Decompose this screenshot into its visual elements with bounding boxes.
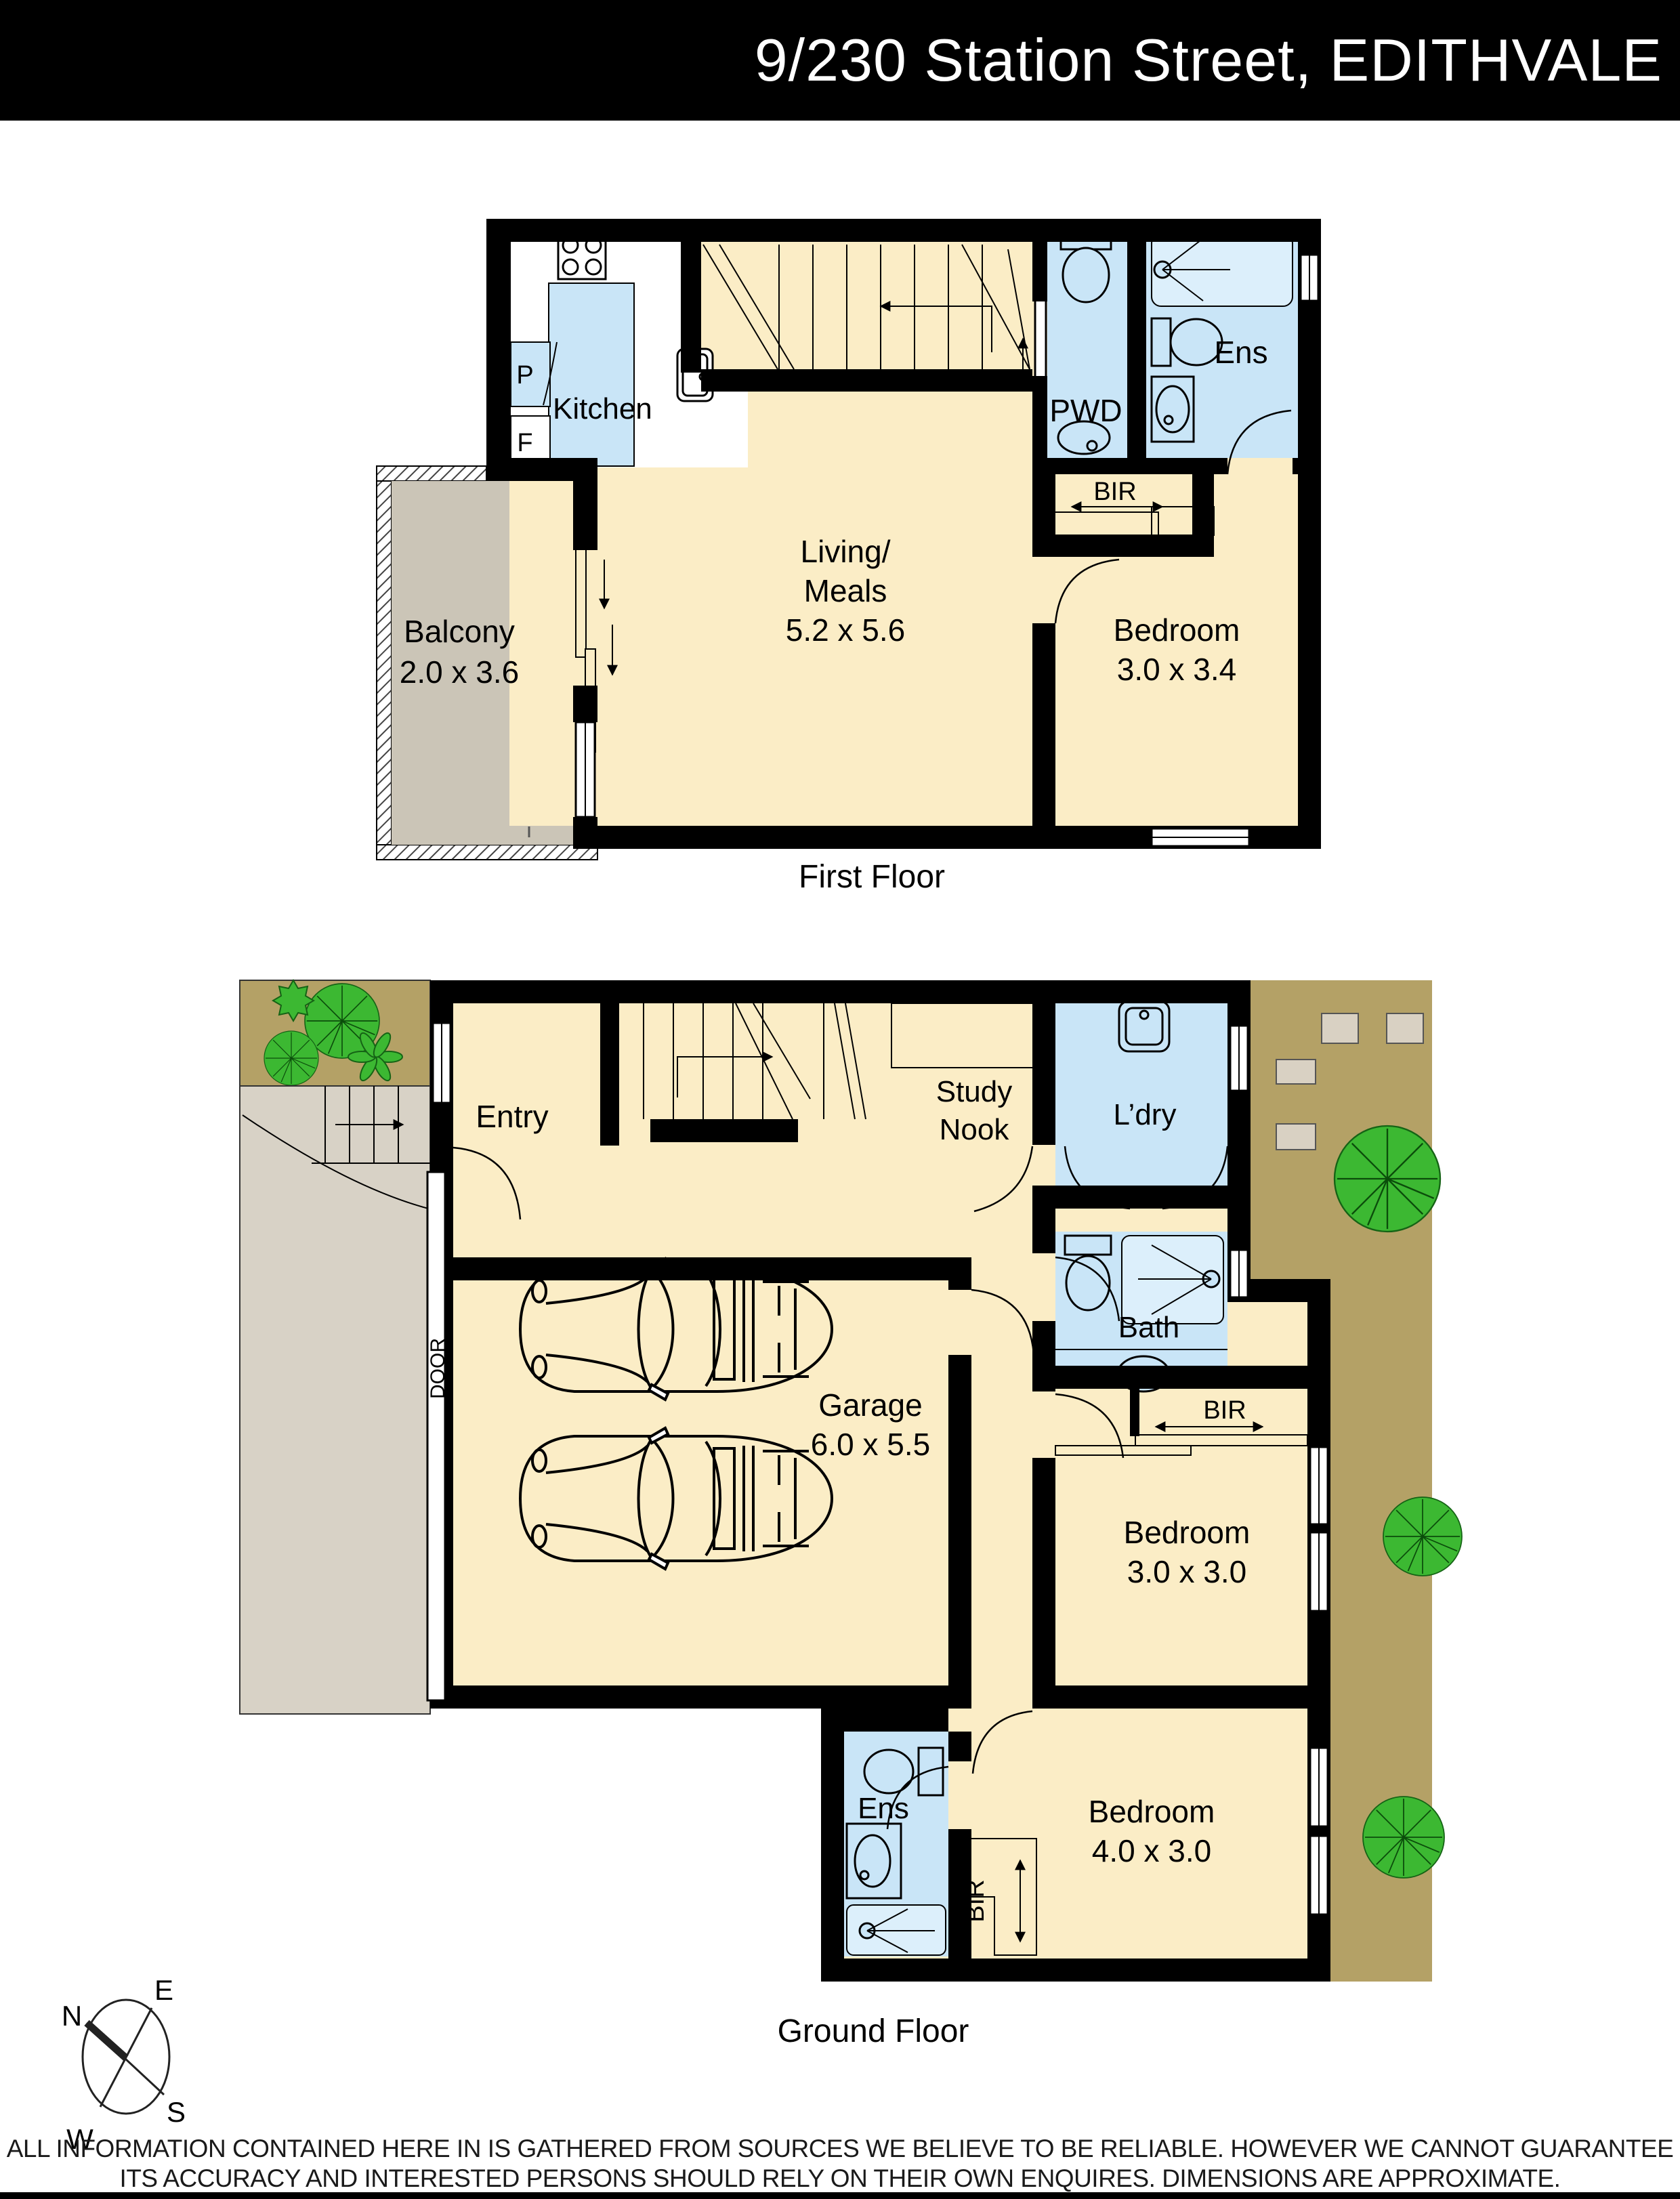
bath-label: Bath [1118,1311,1180,1344]
balcony-label: Balcony [404,614,515,649]
kitchen-label: Kitchen [553,392,652,425]
laundry-label: L’dry [1114,1098,1177,1131]
pwd-label: PWD [1049,393,1122,428]
first-floor-caption: First Floor [799,859,945,895]
bir1-label: BIR [1203,1396,1246,1425]
toilet-icon [1152,318,1171,366]
svg-text:Nook: Nook [940,1113,1010,1146]
toilet-icon [919,1748,943,1795]
bedroom4-label: Bedroom [1089,1794,1215,1829]
bedroom3-dims: 3.0 x 3.0 [1127,1554,1246,1589]
ground-floor-plan: Entry Study Nook L’dry Bath Garage 6.0 x… [240,980,1462,2049]
ground-floor-caption: Ground Floor [778,2013,969,2049]
living-label: Living/ [801,534,891,569]
balcony-dims: 2.0 x 3.6 [400,654,519,690]
kitchen-bench [549,283,634,466]
compass-s: S [167,2096,186,2128]
entry-label: Entry [476,1099,548,1134]
disclaimer: ALL INFORMATION CONTAINED HERE IN IS GAT… [0,2134,1680,2194]
compass-n: N [62,2000,82,2032]
ens-ground-label: Ens [858,1792,909,1825]
ens-label: Ens [1214,335,1267,370]
bir2-label: BIR [961,1879,990,1922]
garage-door-label: DOOR [427,1338,449,1399]
first-floor-plan: Kitchen P F PWD Ens BIR Living/ Meals 5.… [377,219,1321,895]
garage-door [427,1172,445,1700]
study-label: Study [936,1075,1013,1108]
pantry-label: P [516,361,533,390]
bedroom-dims: 3.0 x 3.4 [1117,652,1236,687]
bottom-bar [0,2192,1680,2199]
floorplan-canvas: Kitchen P F PWD Ens BIR Living/ Meals 5.… [0,0,1680,2199]
bedroom3-label: Bedroom [1124,1515,1251,1550]
compass-icon: N E S W [62,1974,186,2155]
driveway [240,1086,434,1714]
svg-text:Meals: Meals [804,573,887,608]
compass-e: E [154,1974,173,2006]
garage-dims: 6.0 x 5.5 [811,1427,930,1462]
toilet-icon [1065,1236,1111,1255]
study-desk [891,1003,1043,1068]
disclaimer-line1: ALL INFORMATION CONTAINED HERE IN IS GAT… [0,2134,1680,2164]
shrub-icon [273,980,314,1021]
disclaimer-line2: ITS ACCURACY AND INTERESTED PERSONS SHOU… [0,2164,1680,2194]
bir-label: BIR [1093,478,1136,506]
garage-label: Garage [818,1387,922,1423]
living-dims: 5.2 x 5.6 [786,612,905,648]
fridge-label: F [517,429,532,457]
pocket-door [1035,298,1046,378]
bedroom4-dims: 4.0 x 3.0 [1092,1833,1211,1868]
bedroom-label: Bedroom [1114,612,1240,648]
